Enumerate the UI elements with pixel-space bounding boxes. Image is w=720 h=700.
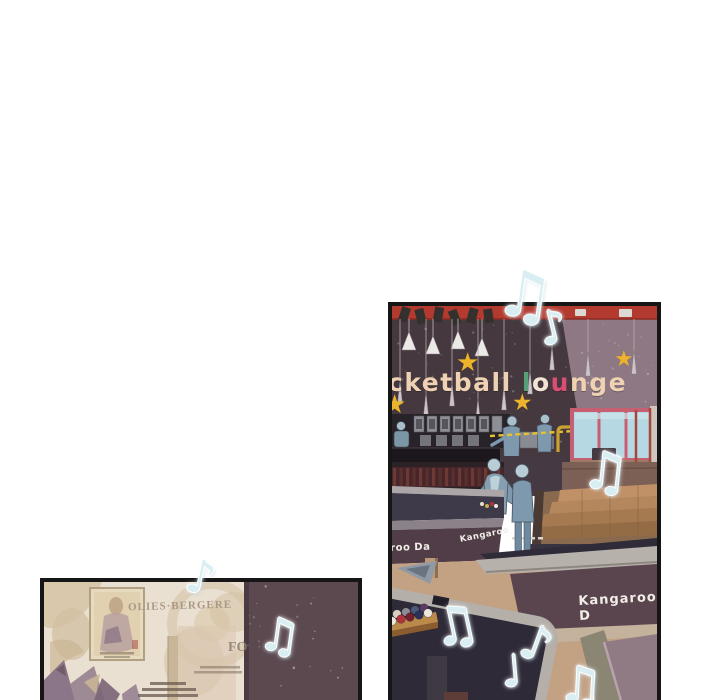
- music-note-icon: ♫: [557, 659, 604, 700]
- star-icon: ★: [512, 392, 533, 415]
- table-leg-front: [444, 692, 468, 700]
- poster-fragment-text: FO: [228, 640, 247, 656]
- music-note-icon: ♫: [579, 444, 631, 501]
- bar-counter: [392, 448, 500, 464]
- ceiling-light: [619, 309, 632, 317]
- star-icon: ★: [456, 350, 479, 376]
- table-label-kangaroo-front: Kangaroo D: [578, 590, 658, 624]
- table-label-partial: roo Da: [390, 542, 431, 554]
- ceiling-light: [575, 309, 586, 316]
- framed-poster: [90, 588, 144, 660]
- music-note-icon: ♩: [499, 649, 524, 695]
- comic-page: cketball lounge ★ ★ ★ ★ roo Da Kangaroo …: [0, 0, 720, 700]
- music-note-icon: ♫: [256, 609, 303, 660]
- star-icon: ★: [388, 392, 406, 418]
- lounge-sign: cketball lounge: [388, 368, 627, 397]
- music-note-icon: ♫: [427, 596, 483, 657]
- star-icon: ★: [614, 349, 634, 371]
